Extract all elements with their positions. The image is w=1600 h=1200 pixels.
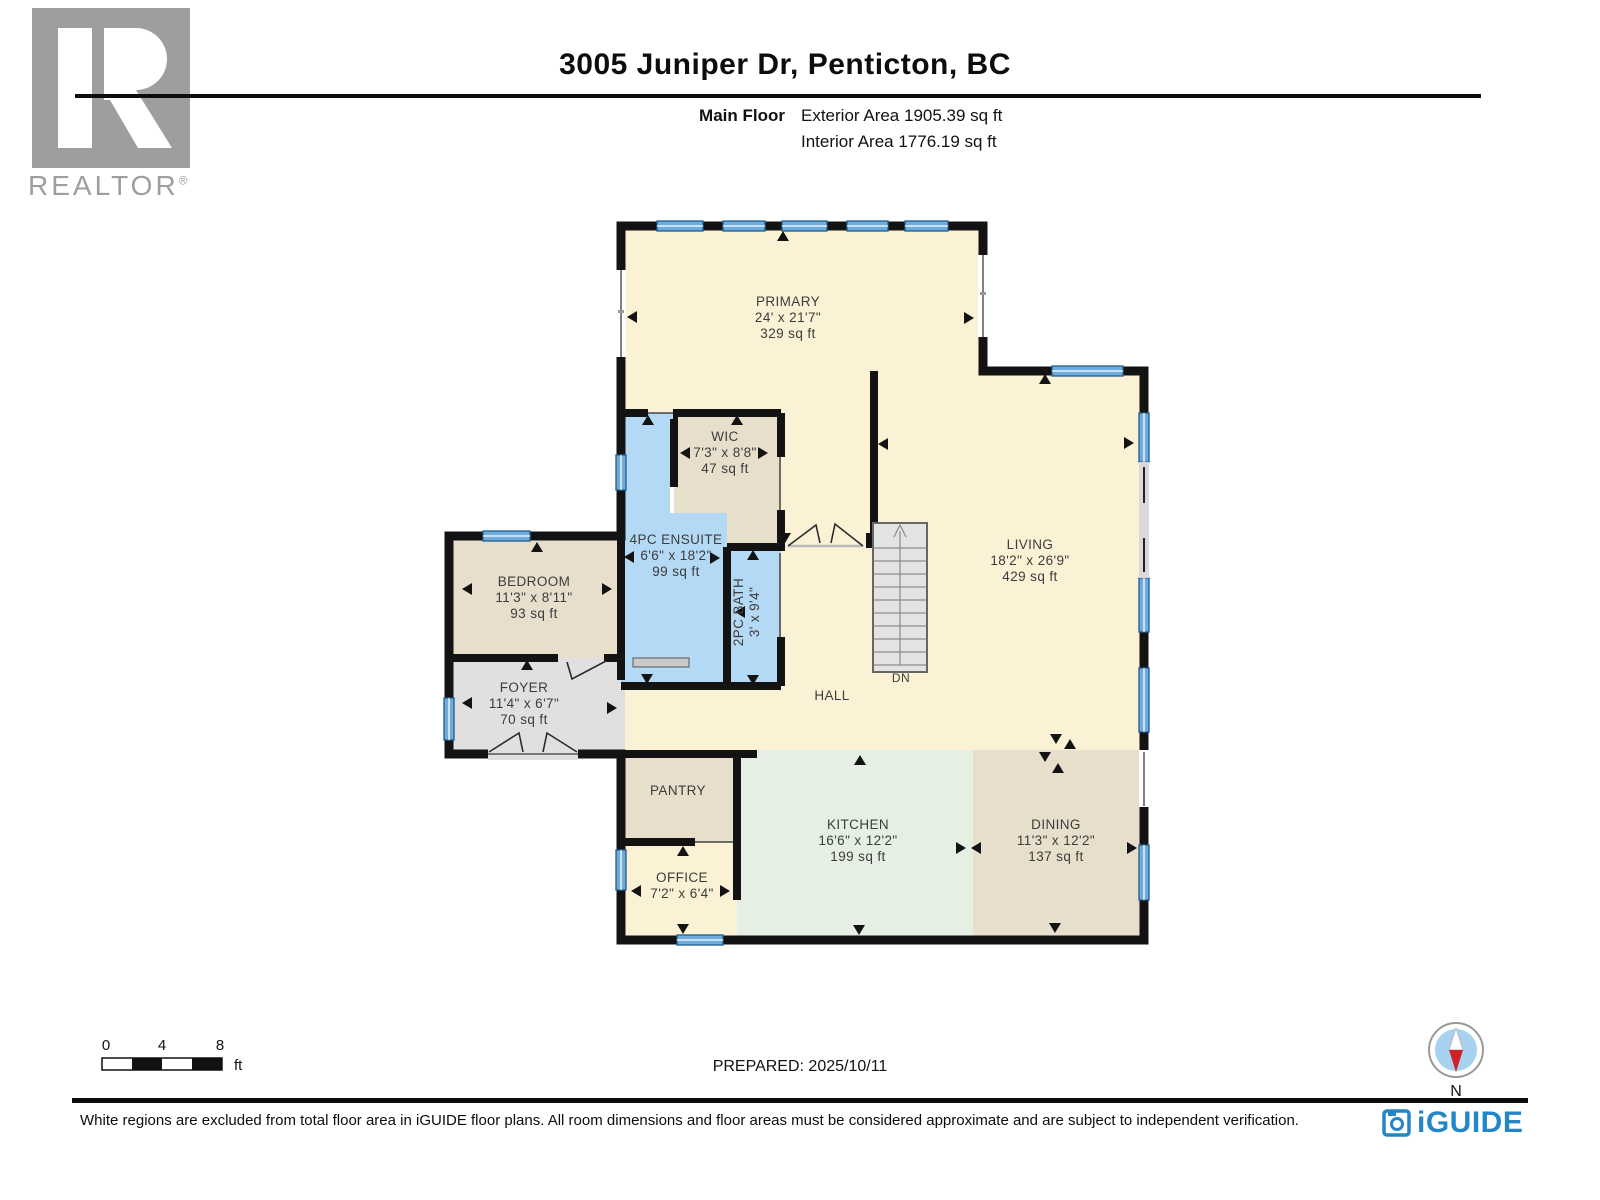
office-dims: 7'2" x 6'4" — [650, 886, 713, 901]
ensuite-name: 4PC ENSUITE — [630, 532, 723, 547]
ensuite-vanity — [633, 658, 689, 667]
realtor-logo-icon — [32, 8, 190, 168]
living-area: 429 sq ft — [1002, 569, 1057, 584]
primary-name: PRIMARY — [756, 294, 820, 309]
bath-name: 2PC BATH — [731, 578, 746, 646]
stairs-dn-label: DN — [892, 671, 910, 685]
floorplan-page: { "header": { "title": "3005 Juniper Dr,… — [0, 0, 1600, 1200]
living-name: LIVING — [1007, 537, 1054, 552]
realtor-logo — [32, 8, 190, 173]
bedroom-area: 93 sq ft — [510, 606, 557, 621]
kitchen-name: KITCHEN — [827, 817, 889, 832]
dining-dims: 11'3" x 12'2" — [1017, 833, 1095, 848]
office-name: OFFICE — [656, 870, 708, 885]
staircase: DN — [873, 523, 927, 685]
dining-area: 137 sq ft — [1028, 849, 1083, 864]
hall-name: HALL — [814, 688, 849, 703]
pantry-name: PANTRY — [650, 783, 706, 798]
ensuite-area: 99 sq ft — [652, 564, 699, 579]
bedroom-name: BEDROOM — [498, 574, 571, 589]
kitchen-area: 199 sq ft — [830, 849, 885, 864]
dining-name: DINING — [1031, 817, 1081, 832]
primary-dims: 24' x 21'7" — [755, 310, 821, 325]
room-label-office: OFFICE 7'2" x 6'4" — [650, 870, 713, 901]
wic-name: WIC — [711, 429, 738, 444]
title-divider — [75, 94, 1481, 98]
primary-area: 329 sq ft — [760, 326, 815, 341]
foyer-dims: 11'4" x 6'7" — [489, 696, 559, 711]
kitchen-dims: 16'6" x 12'2" — [818, 833, 897, 848]
pantry-floor — [621, 754, 737, 842]
bedroom-dims: 11'3" x 8'11" — [495, 590, 572, 605]
living-dims: 18'2" x 26'9" — [990, 553, 1069, 568]
room-label-primary: PRIMARY 24' x 21'7" 329 sq ft — [755, 294, 821, 341]
foyer-area: 70 sq ft — [500, 712, 547, 727]
room-label-bath: 2PC BATH 3' x 9'4" — [731, 578, 762, 646]
foyer-name: FOYER — [500, 680, 549, 695]
wic-dims: 7'3" x 8'8" — [693, 445, 756, 460]
wic-area: 47 sq ft — [701, 461, 748, 476]
ensuite-dims: 6'6" x 18'2" — [640, 548, 711, 563]
closet-strip-floor — [727, 513, 781, 547]
bath-dims: 3' x 9'4" — [747, 587, 762, 637]
floorplan-drawing: DN — [0, 0, 1600, 1200]
